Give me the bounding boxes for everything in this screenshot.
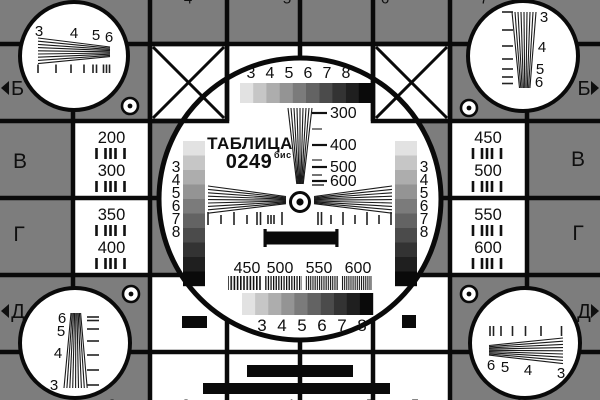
edge-stub: 5: [411, 397, 419, 400]
bullseye-center: [291, 193, 310, 212]
grayscale-strip-top: [240, 83, 372, 103]
test-card: 3 4 5 6 7 8 300 400 500 600 ТАБЛИЦА 0249…: [0, 0, 600, 400]
corner-circle-top-left: 3 4 5 6: [20, 2, 128, 110]
corner-label: 6: [487, 357, 495, 374]
wedge-label-400: 400: [330, 137, 357, 154]
scale-label: 8: [172, 224, 181, 241]
scale-label: 8: [357, 316, 366, 335]
black-mark-left: [182, 316, 207, 328]
bullseye-icon: [461, 286, 477, 302]
freq-cell-label: 200: [98, 129, 126, 147]
scale-label: 4: [277, 316, 286, 335]
scale-label: 5: [297, 316, 306, 335]
edge-stub: 2: [108, 397, 116, 400]
black-mark-right: [402, 315, 416, 328]
corner-label: 4: [524, 362, 532, 379]
corner-label: 5: [57, 323, 65, 340]
freq-cell-label: 600: [474, 239, 502, 257]
row-letter-left: Д: [11, 301, 25, 323]
freq-cell-label: 350: [98, 206, 126, 224]
corner-label: 6: [105, 29, 113, 46]
card-code-suffix: бис: [274, 150, 292, 160]
corner-label: 5: [92, 27, 100, 44]
bullseye-icon: [461, 100, 477, 116]
freq-cell-label: 450: [474, 129, 502, 147]
edge-stub: 4: [286, 397, 294, 400]
scale-label: 8: [420, 224, 429, 241]
scale-label: 6: [317, 316, 326, 335]
scale-label: 4: [266, 65, 275, 82]
corner-circle-bottom-left: 6 5 4 3: [20, 288, 130, 398]
corner-circle-bottom-right: 6 5 4 3: [470, 288, 580, 398]
edge-stub: 6: [515, 397, 523, 400]
corner-label: 4: [538, 39, 546, 56]
edge-stub: 5: [283, 0, 291, 8]
row-letter-right: Д: [577, 301, 591, 323]
grayscale-stair-left: [183, 141, 205, 286]
row-letter-right: В: [571, 148, 585, 171]
corner-label: 3: [50, 377, 58, 394]
freq-cell-label: 300: [98, 162, 126, 180]
row-letter-left: В: [13, 150, 27, 173]
sync-bar-upper: [247, 365, 353, 377]
scale-label: 8: [342, 65, 351, 82]
edge-stub: 6: [381, 0, 389, 8]
row-letter-left: Б: [11, 78, 24, 100]
row-letter-right: Г: [572, 222, 583, 245]
black-reference-bar: [264, 229, 339, 247]
corner-label: 4: [54, 345, 62, 362]
sync-bar-lower: [203, 383, 390, 394]
edge-stub: 7: [480, 0, 488, 8]
card-code-text: 0249: [226, 151, 273, 173]
wedge-mark-labels: 300 400 500 600: [330, 105, 357, 190]
scale-label: 6: [304, 65, 313, 82]
wedge-label-600: 600: [330, 173, 357, 190]
burst-label: 600: [345, 260, 372, 277]
scale-label: 7: [323, 65, 332, 82]
scale-label: 5: [285, 65, 294, 82]
bullseye-icon: [123, 286, 139, 302]
row-letter-right: Б: [577, 78, 590, 100]
test-card-canvas: 3 4 5 6 7 8 300 400 500 600 ТАБЛИЦА 0249…: [0, 0, 600, 400]
corner-label: 4: [70, 25, 78, 42]
bullseye-icon: [122, 98, 138, 114]
edge-stub: 4: [184, 0, 192, 8]
corner-label: 3: [35, 23, 43, 40]
wedge-label-300: 300: [330, 105, 357, 122]
burst-label: 550: [306, 260, 333, 277]
freq-cell-label: 550: [474, 206, 502, 224]
row-letter-left: Г: [13, 223, 24, 246]
side-scale-right-labels: 3 4 5 6 7 8: [420, 159, 429, 241]
grayscale-stair-right: [395, 141, 417, 286]
corner-label: 3: [557, 365, 565, 382]
frequency-burst-strip: [228, 276, 372, 290]
side-scale-left-labels: 3 4 5 6 7 8: [172, 159, 181, 241]
corner-circle-top-right: 3 4 5 6: [468, 1, 578, 111]
scale-label: 3: [257, 316, 266, 335]
grayscale-strip-bottom: [242, 293, 373, 315]
scale-label: 3: [247, 65, 256, 82]
corner-label: 6: [535, 74, 543, 91]
corner-label: 5: [501, 359, 509, 376]
edge-stub: 5: [366, 397, 374, 400]
scale-label: 7: [337, 316, 346, 335]
freq-cell-label: 400: [98, 239, 126, 257]
freq-cell-label: 500: [474, 162, 502, 180]
edge-stub: 3: [182, 397, 190, 400]
burst-label: 450: [234, 260, 261, 277]
corner-label: 3: [540, 9, 548, 26]
burst-label: 500: [267, 260, 294, 277]
